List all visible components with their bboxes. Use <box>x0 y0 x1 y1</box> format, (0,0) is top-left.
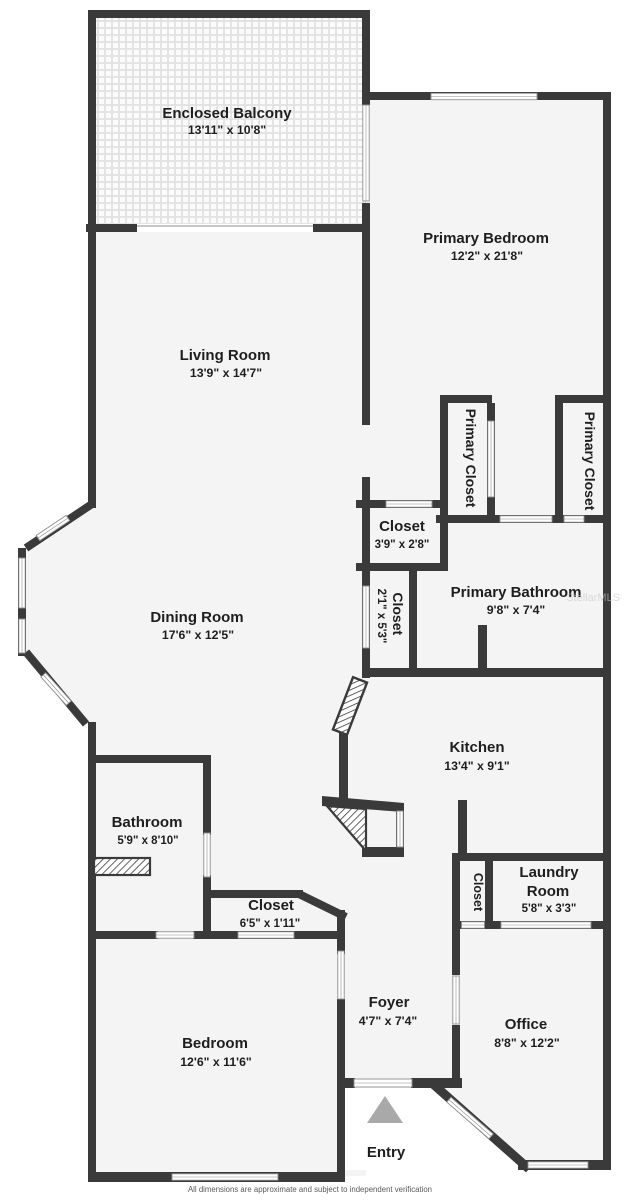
laundry-room-label-2: Room <box>527 883 570 900</box>
office-dims: 8'8" x 12'2" <box>494 1036 560 1050</box>
floorplan-canvas: Enclosed Balcony 13'11" x 10'8" Primary … <box>0 0 625 1200</box>
bathroom-label: Bathroom <box>112 814 183 831</box>
primary-bedroom-dims: 12'2" x 21'8" <box>451 249 523 263</box>
primary-bathroom-dims: 9'8" x 7'4" <box>487 603 546 617</box>
closet-2x5-dims: 2'1" x 5'3" <box>375 589 387 644</box>
bedroom-label: Bedroom <box>182 1035 248 1052</box>
kitchen-dims: 13'4" x 9'1" <box>444 759 510 773</box>
primary-bathroom-label: Primary Bathroom <box>451 584 582 601</box>
enclosed-balcony-dims: 13'11" x 10'8" <box>188 123 267 137</box>
primary-closet-left-label: Primary Closet <box>463 409 479 508</box>
bedroom-dims: 12'6" x 11'6" <box>180 1055 252 1069</box>
dining-room-dims: 17'6" x 12'5" <box>162 628 234 642</box>
front-door-opening <box>354 1079 412 1087</box>
closet-2x5-label: Closet <box>390 592 406 635</box>
hall-closet-dims: 6'5" x 1'11" <box>240 918 301 930</box>
foyer-label: Foyer <box>369 994 410 1011</box>
laundry-closet-label: Closet <box>471 873 485 912</box>
balcony-bottom-opening <box>137 224 313 232</box>
laundry-room-label-1: Laundry <box>519 864 579 881</box>
dining-room-label: Dining Room <box>150 609 243 626</box>
bathroom-vanity <box>94 858 150 875</box>
disclaimer-text: All dimensions are approximate and subje… <box>188 1185 432 1194</box>
enclosed-balcony-label: Enclosed Balcony <box>162 105 292 122</box>
watermark-text: StellarMLS <box>566 592 620 604</box>
bay-window-floor <box>22 500 96 735</box>
living-room-label: Living Room <box>180 347 271 364</box>
entry-label: Entry <box>367 1144 406 1161</box>
primary-closet-right-label: Primary Closet <box>582 412 598 511</box>
office-label: Office <box>505 1016 548 1033</box>
hall-closet-label: Closet <box>248 897 294 914</box>
kitchen-label: Kitchen <box>449 739 504 756</box>
primary-bedroom-label: Primary Bedroom <box>423 230 549 247</box>
closet-3x2-label: Closet <box>379 518 425 535</box>
bathroom-partition-wall <box>478 625 487 668</box>
closet-2x5-label-group: Closet 2'1" x 5'3" <box>375 589 406 644</box>
living-room-dims: 13'9" x 14'7" <box>190 366 262 380</box>
laundry-room-dims: 5'8" x 3'3" <box>522 903 577 915</box>
foyer-dims: 4'7" x 7'4" <box>359 1014 418 1028</box>
closet-3x2-dims: 3'9" x 2'8" <box>375 539 430 551</box>
bathroom-dims: 5'9" x 8'10" <box>117 835 178 847</box>
floorplan-svg: Enclosed Balcony 13'11" x 10'8" Primary … <box>0 0 625 1200</box>
